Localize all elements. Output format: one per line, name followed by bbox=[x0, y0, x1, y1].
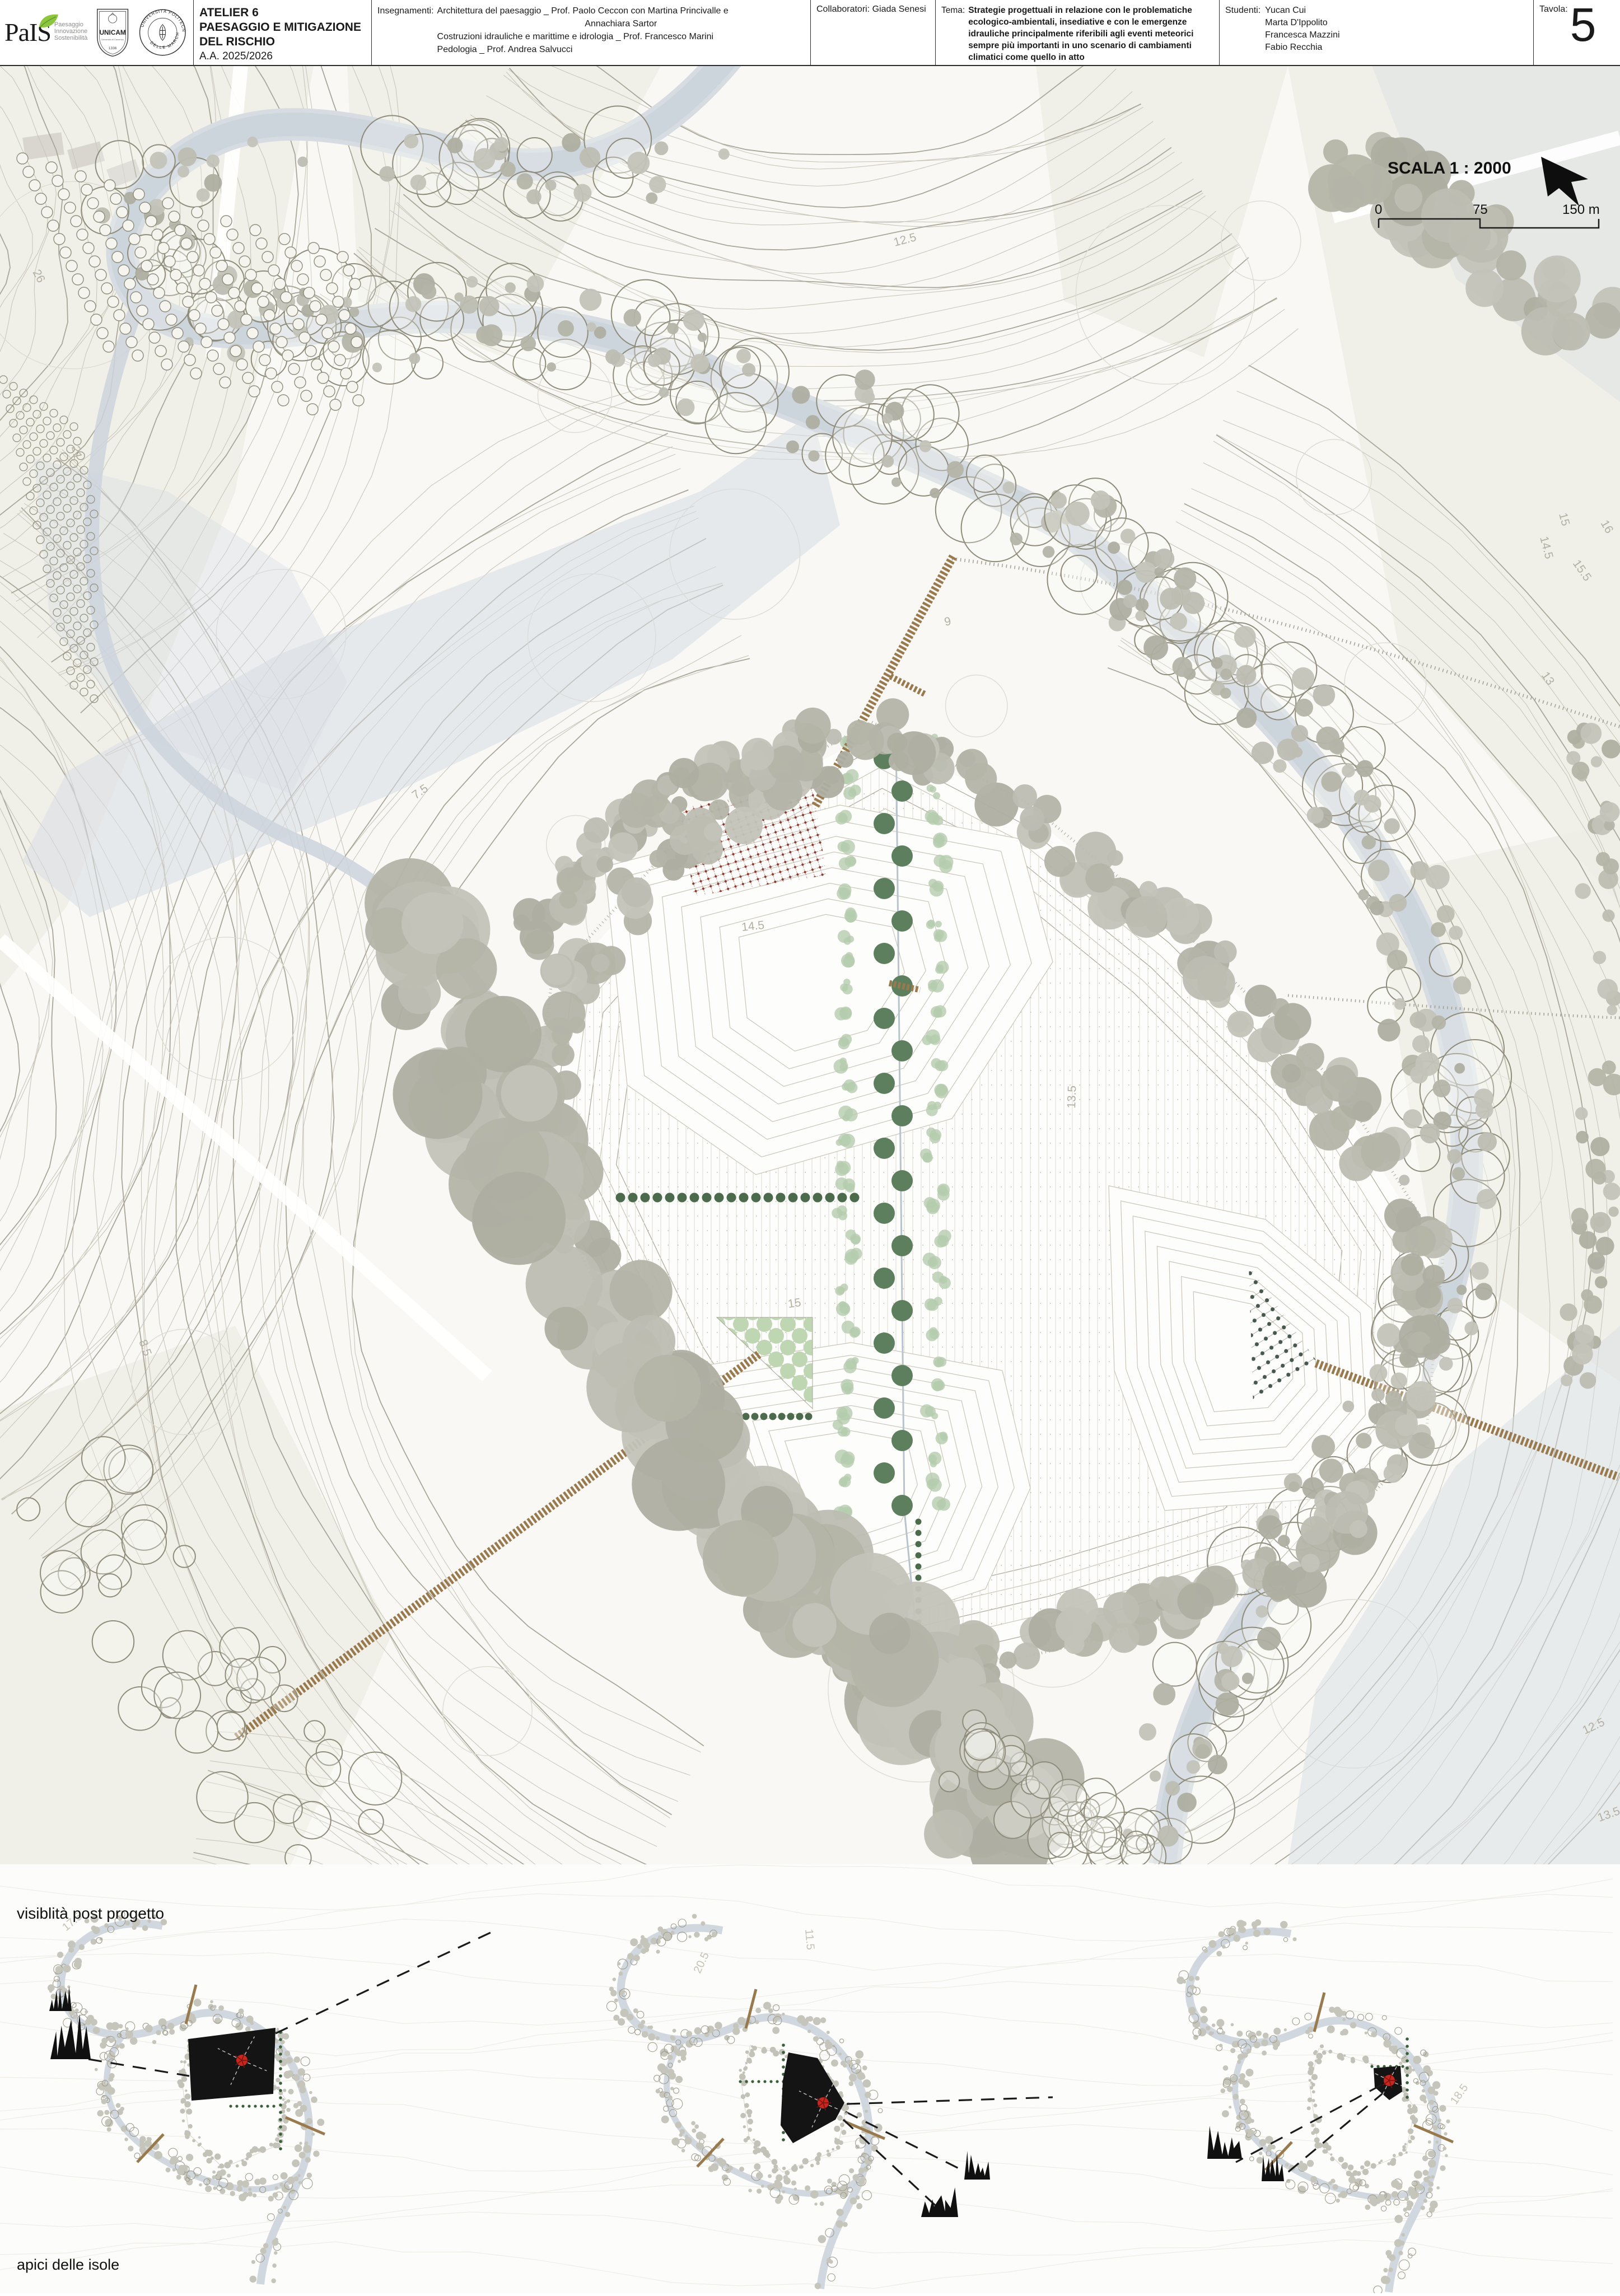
students-block: Studenti: Yucan Cui Marta D'Ippolito Fra… bbox=[1219, 0, 1533, 65]
svg-text:11.5: 11.5 bbox=[802, 1929, 816, 1951]
svg-text:21: 21 bbox=[69, 445, 84, 460]
seal-emblem bbox=[160, 25, 166, 40]
theme-block: Tema: Strategie progettuali in relazione… bbox=[935, 0, 1219, 65]
presentation-board: { "header": { "pais": {"name": "PaIS", "… bbox=[0, 0, 1620, 2293]
svg-text:18.5: 18.5 bbox=[1448, 2082, 1470, 2107]
apici-label: apici delle isole bbox=[17, 2256, 119, 2274]
sheet-number-block: Tavola: 5 bbox=[1533, 0, 1620, 65]
collaborators-block: Collaboratori: Giada Senesi bbox=[810, 0, 935, 65]
masterplan-map: 12.5914.51513.52621131514.51615.58.57.51… bbox=[0, 66, 1620, 1864]
collaborator-name: Giada Senesi bbox=[872, 4, 926, 14]
course-title: ATELIER 6 PAESAGGIO E MITIGAZIONE DEL RI… bbox=[193, 0, 371, 65]
svg-text:0: 0 bbox=[1375, 202, 1382, 217]
view-line bbox=[276, 1932, 493, 2033]
visibility-title: visiblità post progetto bbox=[17, 1905, 164, 1923]
visibility-diagrams-strip: 17.51920.511.515.518.5 visiblità post pr… bbox=[0, 1864, 1620, 2293]
student-name: Fabio Recchia bbox=[1265, 41, 1339, 54]
svg-text:UNICAM: UNICAM bbox=[100, 29, 126, 36]
univpm-seal: UNIVERSITÀ POLITECNICA DELLE MARCHE bbox=[138, 6, 188, 59]
svg-text:20.5: 20.5 bbox=[692, 1951, 712, 1976]
teachings-block: Insegnamenti: Architettura del paesaggio… bbox=[371, 0, 810, 65]
teachings-label: Insegnamenti: bbox=[377, 4, 434, 60]
leaf-icon bbox=[36, 12, 60, 32]
pais-logo: PaIS Paesaggio Innovazione Sostenibilità bbox=[4, 21, 87, 44]
svg-text:15: 15 bbox=[787, 1296, 801, 1311]
title-block: PaIS Paesaggio Innovazione Sostenibilità… bbox=[0, 0, 1620, 66]
student-name: Marta D'Ippolito bbox=[1265, 17, 1339, 29]
visibility-diagram bbox=[48, 1911, 493, 2284]
student-name: Yucan Cui bbox=[1265, 4, 1339, 17]
sheet-number: 5 bbox=[1570, 1, 1596, 60]
svg-text:150 m: 150 m bbox=[1562, 202, 1600, 217]
svg-text:14.5: 14.5 bbox=[741, 919, 765, 934]
theme-text: Strategie progettuali in relazione con l… bbox=[968, 4, 1213, 60]
view-line bbox=[847, 2097, 1053, 2104]
visibility-field bbox=[188, 2028, 276, 2101]
svg-text:UNIVERSITÀ POLITECNICA: UNIVERSITÀ POLITECNICA bbox=[138, 6, 186, 32]
visibility-diagram bbox=[1177, 1919, 1453, 2293]
scale-label: SCALA 1 : 2000 bbox=[1388, 159, 1511, 177]
visibility-diagram bbox=[607, 1914, 1053, 2289]
svg-text:1336: 1336 bbox=[109, 46, 117, 50]
svg-text:13.5: 13.5 bbox=[1065, 1086, 1079, 1109]
unicam-logo: UNICAM Università di Camerino 1336 bbox=[95, 6, 130, 59]
svg-text:Università di Camerino: Università di Camerino bbox=[101, 38, 124, 41]
svg-text:75: 75 bbox=[1473, 202, 1488, 217]
view-line bbox=[88, 2059, 189, 2076]
logos: PaIS Paesaggio Innovazione Sostenibilità… bbox=[0, 0, 193, 65]
student-name: Francesca Mazzini bbox=[1265, 29, 1339, 41]
